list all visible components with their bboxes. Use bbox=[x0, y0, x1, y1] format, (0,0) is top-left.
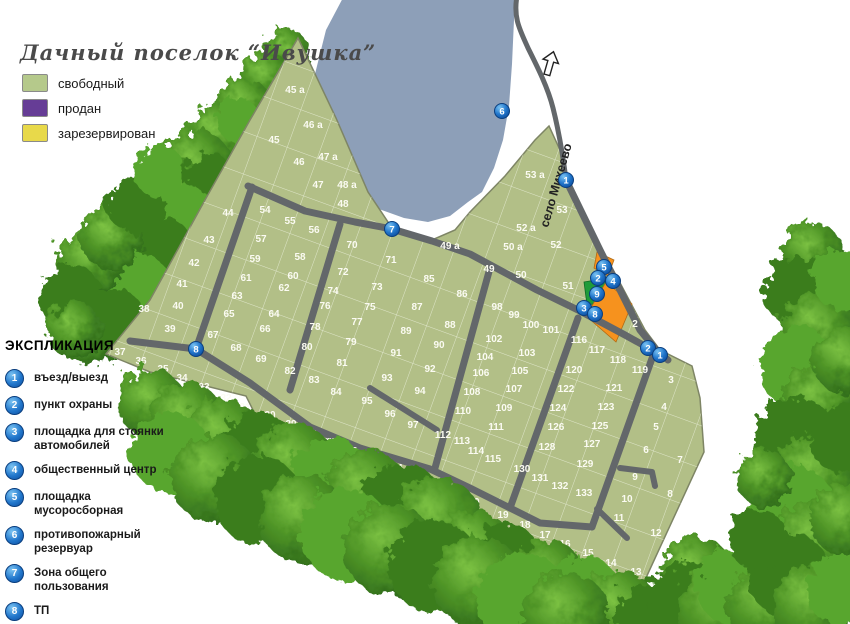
plot-57: 57 bbox=[255, 234, 267, 245]
svg-text:8: 8 bbox=[592, 310, 597, 321]
plot-2: 2 bbox=[632, 319, 638, 330]
plot-68: 68 bbox=[230, 343, 242, 354]
explication-label: въезд/выезд bbox=[34, 369, 108, 385]
plot-133: 133 bbox=[576, 488, 593, 499]
svg-text:9: 9 bbox=[594, 290, 599, 301]
plot-104: 104 bbox=[477, 352, 494, 363]
plot-72: 72 bbox=[337, 267, 349, 278]
plot-38: 38 bbox=[138, 304, 150, 315]
svg-text:1: 1 bbox=[563, 176, 569, 187]
legend-item-2: зарезервирован bbox=[22, 124, 155, 142]
plot-45а: 45 а bbox=[285, 85, 305, 96]
trees-right bbox=[728, 222, 850, 624]
plot-45: 45 bbox=[268, 135, 280, 146]
explication-badge: 2 bbox=[5, 396, 24, 415]
plot-84: 84 bbox=[330, 387, 342, 398]
marker-8-3: 8 bbox=[189, 342, 204, 357]
plot-73: 73 bbox=[371, 282, 383, 293]
plot-123: 123 bbox=[598, 402, 615, 413]
plot-99: 99 bbox=[508, 310, 520, 321]
plot-52: 52 bbox=[550, 240, 562, 251]
plot-93: 93 bbox=[381, 373, 393, 384]
explication: ЭКСПЛИКАЦИЯ 1въезд/выезд2пункт охраны3пл… bbox=[5, 338, 183, 624]
plot-47а: 47 а bbox=[318, 152, 338, 163]
plot-77: 77 bbox=[351, 317, 363, 328]
plot-9: 9 bbox=[632, 472, 638, 483]
marker-1-0: 1 bbox=[559, 173, 574, 188]
explication-label: общественный центр bbox=[34, 461, 156, 477]
plot-75: 75 bbox=[364, 302, 376, 313]
plot-63: 63 bbox=[231, 291, 243, 302]
explication-badge: 1 bbox=[5, 369, 24, 388]
explication-label: пункт охраны bbox=[34, 396, 112, 412]
plot-89: 89 bbox=[400, 326, 412, 337]
plot-51: 51 bbox=[562, 281, 574, 292]
explication-badge: 3 bbox=[5, 423, 24, 442]
explication-badge: 8 bbox=[5, 602, 24, 621]
plot-60: 60 bbox=[287, 271, 299, 282]
plot-67: 67 bbox=[207, 330, 219, 341]
plot-7: 7 bbox=[677, 455, 683, 466]
plot-131: 131 bbox=[532, 473, 549, 484]
plot-90: 90 bbox=[433, 340, 445, 351]
page-title: Дачный поселок “Ивушка” bbox=[20, 40, 376, 65]
plot-91: 91 bbox=[390, 348, 402, 359]
plot-46: 46 bbox=[293, 157, 305, 168]
plot-107: 107 bbox=[506, 384, 523, 395]
plot-100: 100 bbox=[523, 320, 540, 331]
plot-41: 41 bbox=[176, 279, 188, 290]
plot-128: 128 bbox=[539, 442, 556, 453]
legend-swatch bbox=[22, 74, 48, 92]
marker-9-7: 9 bbox=[590, 287, 605, 302]
plot-116: 116 bbox=[571, 335, 588, 346]
plot-47: 47 bbox=[312, 180, 324, 191]
plot-8: 8 bbox=[667, 489, 673, 500]
explication-item-7: 7Зона общего пользования bbox=[5, 564, 183, 594]
plot-81: 81 bbox=[336, 358, 348, 369]
plot-61: 61 bbox=[240, 273, 252, 284]
plot-119: 119 bbox=[632, 365, 649, 376]
plot-43: 43 bbox=[203, 235, 215, 246]
plot-50а: 50 а bbox=[503, 242, 523, 253]
plot-69: 69 bbox=[255, 354, 267, 365]
svg-text:7: 7 bbox=[389, 225, 394, 236]
plot-127: 127 bbox=[584, 439, 601, 450]
marker-4-6: 4 bbox=[606, 274, 621, 289]
plot-117: 117 bbox=[589, 345, 606, 356]
plot-59: 59 bbox=[249, 254, 261, 265]
plot-71: 71 bbox=[385, 255, 397, 266]
legend-label: свободный bbox=[58, 76, 124, 91]
plot-87: 87 bbox=[411, 302, 423, 313]
explication-label: противопожарный резервуар bbox=[34, 526, 183, 556]
plot-19: 19 bbox=[497, 510, 509, 521]
plot-48: 48 bbox=[337, 199, 349, 210]
svg-text:1: 1 bbox=[657, 351, 663, 362]
plot-55: 55 bbox=[284, 216, 296, 227]
plot-50: 50 bbox=[515, 270, 527, 281]
plot-112: 112 bbox=[435, 430, 452, 441]
plot-58: 58 bbox=[294, 252, 306, 263]
plot-6: 6 bbox=[643, 445, 649, 456]
explication-items: 1въезд/выезд2пункт охраны3площадка для с… bbox=[5, 369, 183, 624]
plot-96: 96 bbox=[384, 409, 396, 420]
plot-56: 56 bbox=[308, 225, 320, 236]
plot-124: 124 bbox=[550, 403, 567, 414]
legend-swatch bbox=[22, 99, 48, 117]
plot-10: 10 bbox=[621, 494, 633, 505]
explication-label: ТП bbox=[34, 602, 49, 618]
plot-64: 64 bbox=[268, 309, 280, 320]
legend-item-1: продан bbox=[22, 99, 155, 117]
legend: свободныйпроданзарезервирован bbox=[22, 74, 155, 149]
explication-item-8: 8ТП bbox=[5, 602, 183, 621]
explication-title: ЭКСПЛИКАЦИЯ bbox=[5, 338, 183, 353]
explication-badge: 7 bbox=[5, 564, 24, 583]
explication-item-4: 4общественный центр bbox=[5, 461, 183, 480]
plot-3: 3 bbox=[668, 375, 674, 386]
plot-11: 11 bbox=[614, 513, 625, 524]
svg-text:6: 6 bbox=[499, 107, 504, 118]
marker-6-1: 6 bbox=[495, 104, 510, 119]
plot-111: 111 bbox=[488, 422, 504, 433]
plot-98: 98 bbox=[491, 302, 503, 313]
plot-120: 120 bbox=[566, 365, 583, 376]
plot-125: 125 bbox=[592, 421, 609, 432]
marker-1-11: 1 bbox=[653, 348, 668, 363]
explication-item-3: 3площадка для стоянки автомобилей bbox=[5, 423, 183, 453]
explication-label: площадка мусоросборная bbox=[34, 488, 183, 518]
plot-118: 118 bbox=[610, 355, 627, 366]
plot-44: 44 bbox=[222, 208, 234, 219]
plot-126: 126 bbox=[548, 422, 565, 433]
legend-label: зарезервирован bbox=[58, 126, 155, 141]
plot-122: 122 bbox=[558, 384, 575, 395]
plot-82: 82 bbox=[284, 366, 296, 377]
plot-17: 17 bbox=[539, 530, 551, 541]
explication-item-5: 5площадка мусоросборная bbox=[5, 488, 183, 518]
plot-70: 70 bbox=[346, 240, 358, 251]
svg-text:3: 3 bbox=[581, 304, 586, 315]
plot-40: 40 bbox=[172, 301, 184, 312]
plot-92: 92 bbox=[424, 364, 436, 375]
plot-97: 97 bbox=[407, 420, 419, 431]
plot-5: 5 bbox=[653, 422, 659, 433]
explication-label: площадка для стоянки автомобилей bbox=[34, 423, 183, 453]
legend-label: продан bbox=[58, 101, 101, 116]
plot-78: 78 bbox=[309, 322, 321, 333]
plot-65: 65 bbox=[223, 309, 235, 320]
explication-item-6: 6противопожарный резервуар bbox=[5, 526, 183, 556]
svg-text:4: 4 bbox=[610, 277, 616, 288]
marker-2-5: 2 bbox=[591, 271, 606, 286]
legend-swatch bbox=[22, 124, 48, 142]
plot-4: 4 bbox=[661, 402, 667, 413]
plot-102: 102 bbox=[486, 334, 503, 345]
explication-badge: 4 bbox=[5, 461, 24, 480]
plot-86: 86 bbox=[456, 289, 468, 300]
explication-label: Зона общего пользования bbox=[34, 564, 183, 594]
plot-49а: 49 а bbox=[440, 241, 460, 252]
plot-66: 66 bbox=[259, 324, 271, 335]
plot-46а: 46 а bbox=[303, 120, 323, 131]
plot-53а: 53 а bbox=[525, 170, 545, 181]
plot-74: 74 bbox=[327, 286, 339, 297]
explication-item-1: 1въезд/выезд bbox=[5, 369, 183, 388]
explication-item-2: 2пункт охраны bbox=[5, 396, 183, 415]
explication-badge: 5 bbox=[5, 488, 24, 507]
plot-79: 79 bbox=[345, 337, 357, 348]
marker-8-9: 8 bbox=[588, 307, 603, 322]
svg-text:2: 2 bbox=[595, 274, 600, 285]
plot-39: 39 bbox=[164, 324, 176, 335]
plot-42: 42 bbox=[188, 258, 200, 269]
plot-52а: 52 а bbox=[516, 223, 536, 234]
plot-115: 115 bbox=[485, 454, 502, 465]
plot-53: 53 bbox=[556, 205, 568, 216]
plot-62: 62 bbox=[278, 283, 290, 294]
plot-48а: 48 а bbox=[337, 180, 357, 191]
marker-7-2: 7 bbox=[385, 222, 400, 237]
site-plan: село Михеево 45 а46 а4547 а4648 а4748444… bbox=[0, 0, 850, 624]
plot-80: 80 bbox=[301, 342, 313, 353]
plot-88: 88 bbox=[444, 320, 456, 331]
plot-110: 110 bbox=[455, 406, 472, 417]
plot-130: 130 bbox=[514, 464, 531, 475]
plot-83: 83 bbox=[308, 375, 320, 386]
plot-109: 109 bbox=[496, 403, 513, 414]
legend-item-0: свободный bbox=[22, 74, 155, 92]
plot-103: 103 bbox=[519, 348, 536, 359]
plot-101: 101 bbox=[543, 325, 560, 336]
explication-badge: 6 bbox=[5, 526, 24, 545]
svg-text:2: 2 bbox=[645, 344, 650, 355]
plot-105: 105 bbox=[512, 366, 529, 377]
plot-106: 106 bbox=[473, 368, 490, 379]
plot-95: 95 bbox=[361, 396, 373, 407]
svg-text:8: 8 bbox=[193, 345, 198, 356]
plot-114: 114 bbox=[468, 446, 485, 457]
plot-76: 76 bbox=[319, 301, 331, 312]
plot-108: 108 bbox=[464, 387, 481, 398]
plot-121: 121 bbox=[606, 383, 623, 394]
plot-132: 132 bbox=[552, 481, 569, 492]
plot-94: 94 bbox=[414, 386, 426, 397]
plot-12: 12 bbox=[650, 528, 662, 539]
plot-129: 129 bbox=[577, 459, 594, 470]
plot-85: 85 bbox=[423, 274, 435, 285]
plot-49: 49 bbox=[483, 264, 495, 275]
plot-54: 54 bbox=[259, 205, 271, 216]
